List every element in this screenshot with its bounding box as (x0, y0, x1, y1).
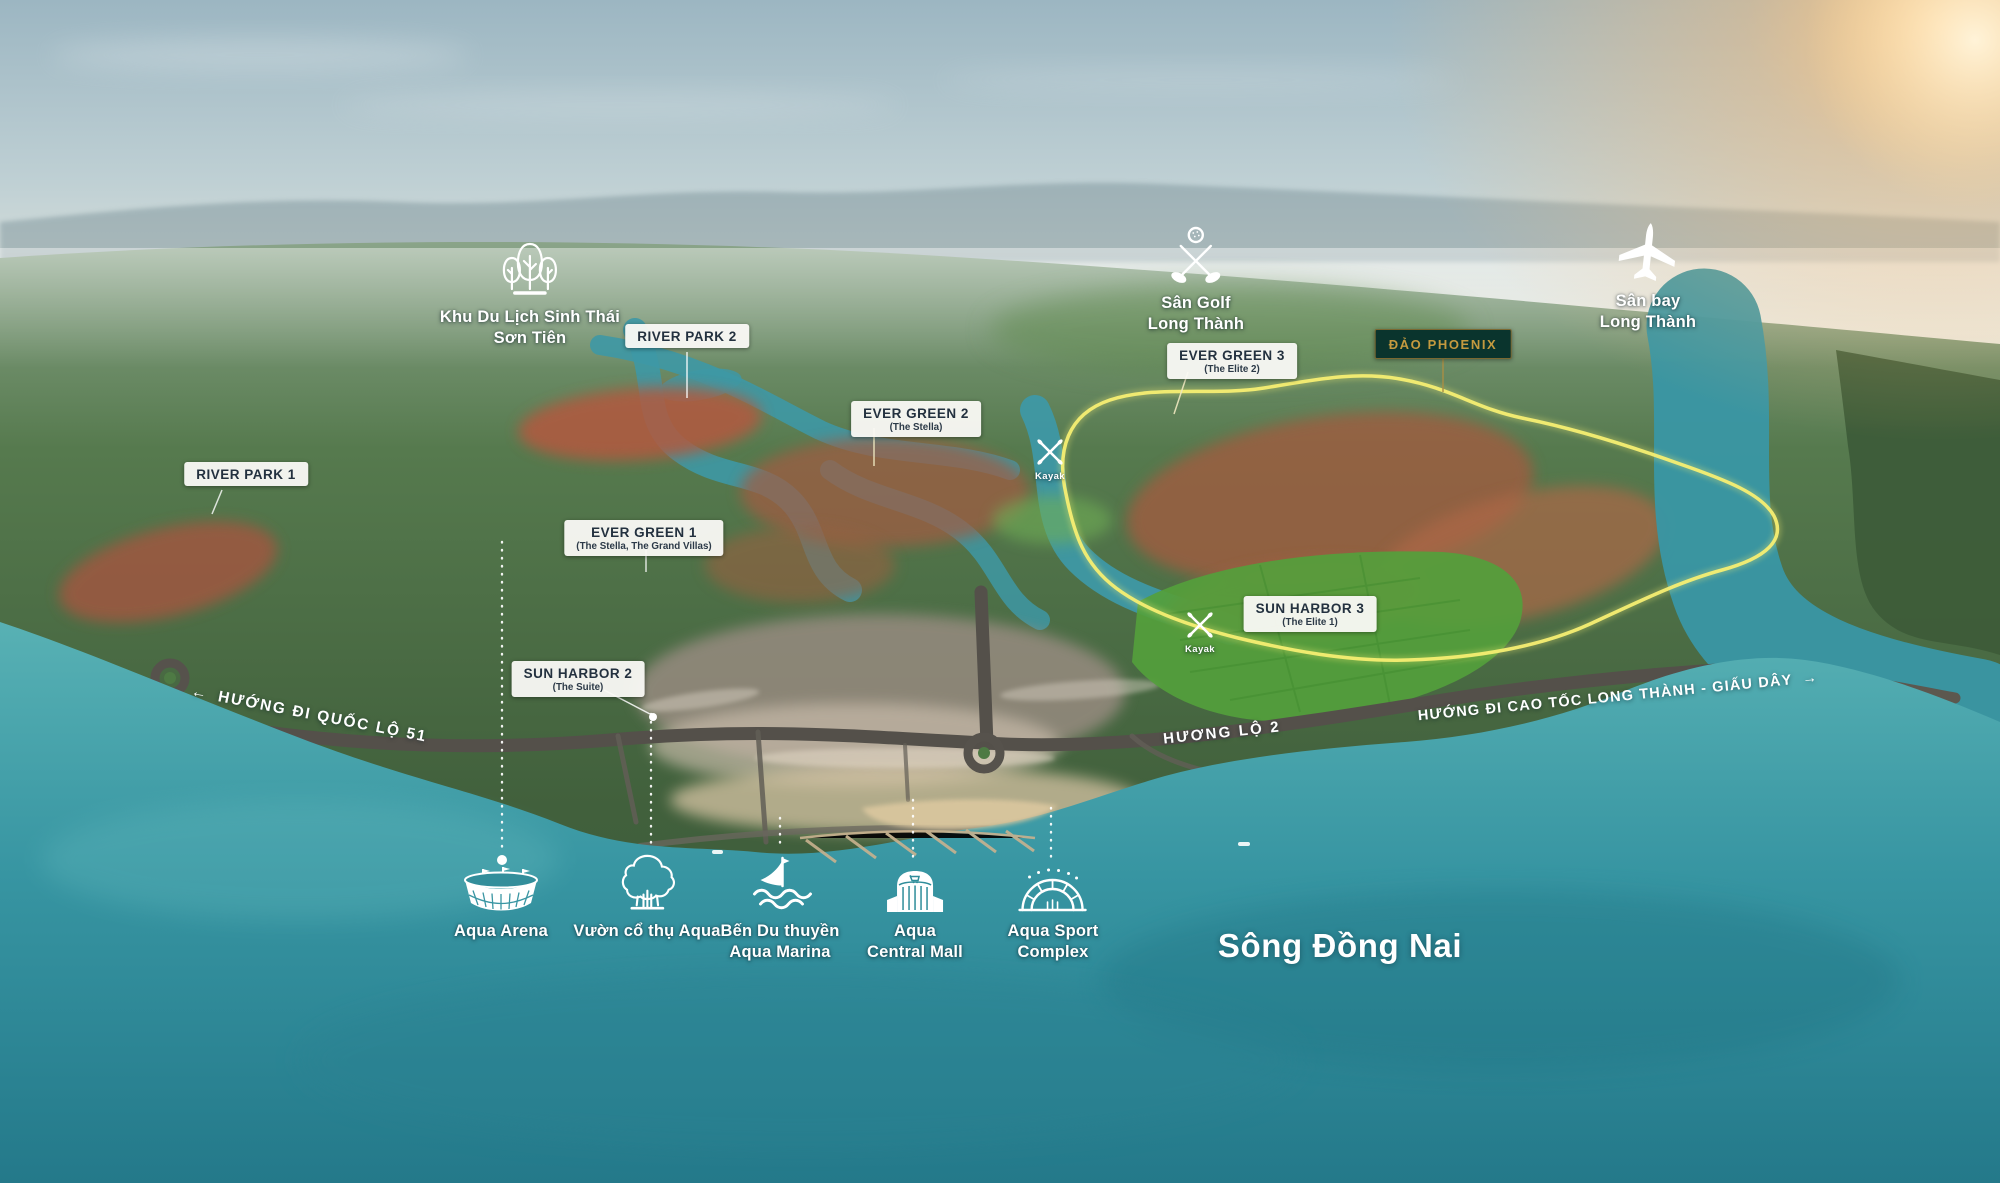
amenity-sport-complex: Aqua Sport Complex (1008, 852, 1099, 963)
amenity-label: Aqua Arena (454, 921, 548, 942)
river-name-label: Sông Đồng Nai (1218, 927, 1462, 965)
sailboat-icon (748, 852, 812, 914)
trees-icon (499, 238, 561, 300)
district-chip-ever-green-2: EVER GREEN 2 (The Stella) (851, 401, 981, 437)
district-chip-river-park-2: RIVER PARK 2 (625, 324, 749, 348)
district-chip-ever-green-1: EVER GREEN 1 (The Stella, The Grand Vill… (564, 520, 723, 556)
old-tree-icon (617, 852, 677, 914)
airplane-icon (1616, 220, 1680, 284)
district-title: EVER GREEN 1 (576, 525, 711, 540)
amenity-central-mall: Aqua Central Mall (867, 852, 963, 963)
arrow-right-icon: → (1802, 670, 1819, 687)
golf-icon (1167, 224, 1225, 286)
district-title: EVER GREEN 3 (1179, 348, 1285, 363)
arena-icon (459, 852, 543, 914)
arrow-left-icon: ← (190, 683, 210, 703)
district-subtitle: (The Elite 1) (1256, 617, 1365, 628)
son-tien-label: Khu Du Lịch Sinh Thái Sơn Tiên (440, 307, 620, 349)
district-title: EVER GREEN 2 (863, 406, 969, 421)
kayak-marker-1: Kayak (1035, 437, 1065, 483)
district-subtitle: (The Elite 2) (1179, 364, 1285, 375)
district-subtitle: (The Suite) (524, 682, 633, 693)
district-title: RIVER PARK 1 (196, 467, 296, 482)
district-title: SUN HARBOR 2 (524, 666, 633, 681)
district-chip-sun-harbor-3: SUN HARBOR 3 (The Elite 1) (1244, 596, 1377, 632)
kayak-icon (1035, 437, 1065, 469)
district-subtitle: (The Stella) (863, 422, 969, 433)
kayak-icon (1185, 610, 1215, 642)
amenity-vuon-co-thu: Vườn cổ thụ Aqua (573, 852, 720, 942)
district-title: SUN HARBOR 3 (1256, 601, 1365, 616)
airport-label: Sân bay Long Thành (1600, 291, 1696, 333)
district-chip-sun-harbor-2: SUN HARBOR 2 (The Suite) (512, 661, 645, 697)
phoenix-island-chip: ĐẢO PHOENIX (1375, 329, 1512, 359)
sun-glow (1150, 0, 2000, 640)
district-title: RIVER PARK 2 (637, 329, 737, 344)
mall-icon (885, 852, 945, 914)
airport-landmark: Sân bay Long Thành (1600, 220, 1696, 333)
district-chip-river-park-1: RIVER PARK 1 (184, 462, 308, 486)
amenity-label: Aqua Sport Complex (1008, 921, 1099, 963)
amenity-aqua-arena: Aqua Arena (454, 852, 548, 942)
sport-stadium-icon (1018, 852, 1088, 914)
district-subtitle: (The Stella, The Grand Villas) (576, 541, 711, 552)
amenity-label: Aqua Central Mall (867, 921, 963, 963)
amenity-label: Bến Du thuyền Aqua Marina (720, 921, 839, 963)
kayak-marker-2: Kayak (1185, 610, 1215, 656)
masterplan-canvas: Khu Du Lịch Sinh Thái Sơn Tiên Sân Golf … (0, 0, 2000, 1183)
amenity-label: Vườn cổ thụ Aqua (573, 921, 720, 942)
son-tien-landmark: Khu Du Lịch Sinh Thái Sơn Tiên (440, 238, 620, 349)
kayak-label: Kayak (1185, 644, 1215, 656)
kayak-label: Kayak (1035, 471, 1065, 483)
amenity-aqua-marina: Bến Du thuyền Aqua Marina (720, 852, 839, 963)
district-chip-ever-green-3: EVER GREEN 3 (The Elite 2) (1167, 343, 1297, 379)
golf-label: Sân Golf Long Thành (1148, 293, 1244, 335)
golf-course-landmark: Sân Golf Long Thành (1148, 224, 1244, 335)
aerial-scene (0, 0, 2000, 1183)
